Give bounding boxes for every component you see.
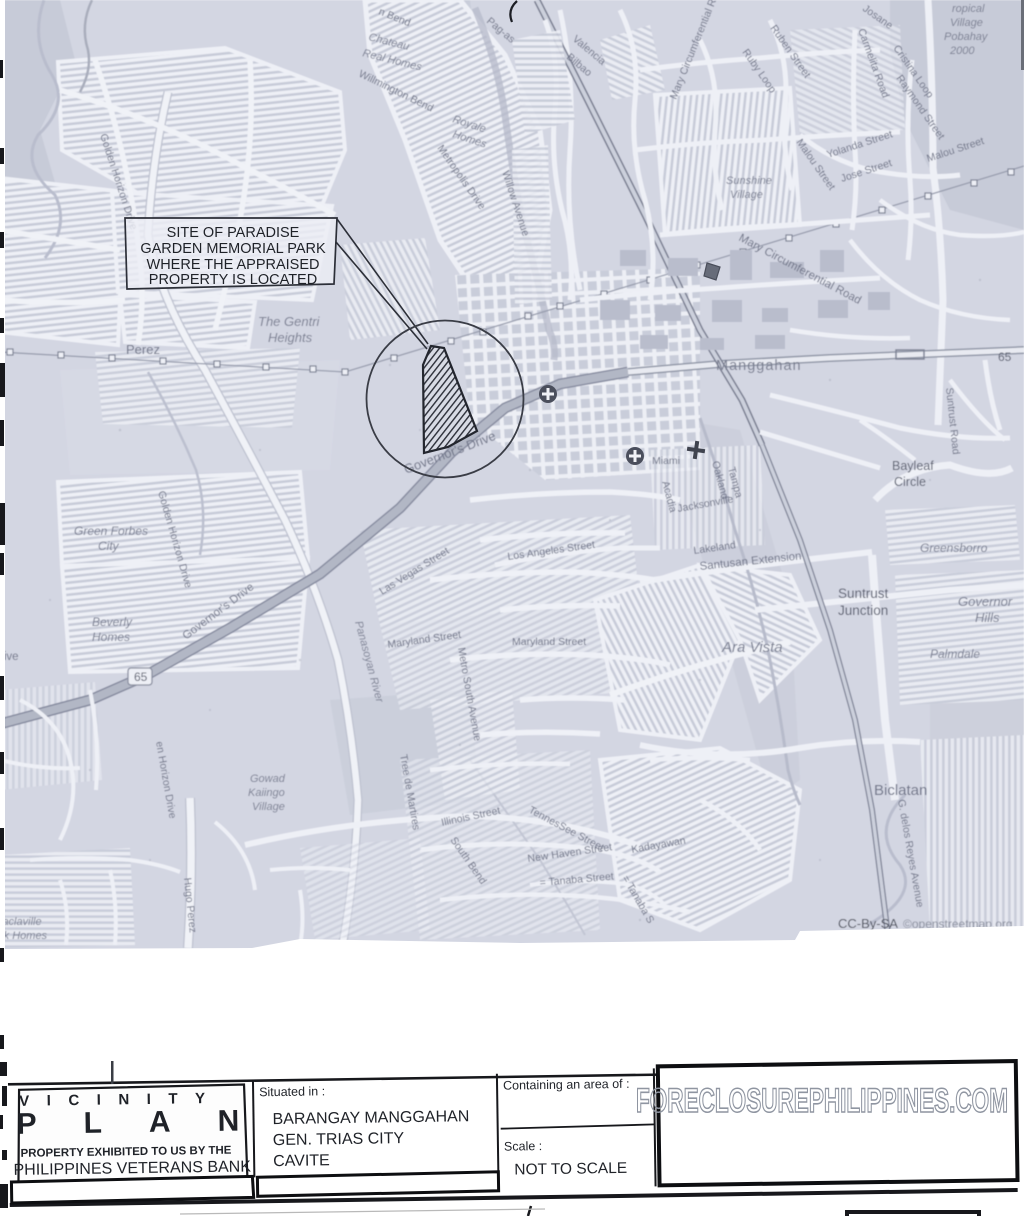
svg-text:Homes: Homes: [92, 630, 130, 644]
svg-text:Sunshine: Sunshine: [726, 175, 772, 187]
svg-text:SITE OF PARADISE: SITE OF PARADISE: [167, 225, 300, 241]
svg-text:Perez: Perez: [126, 342, 160, 357]
svg-text:65: 65: [134, 670, 148, 684]
svg-text:Gowad: Gowad: [250, 773, 286, 785]
svg-text:Containing an area of :: Containing an area of :: [503, 1077, 630, 1093]
svg-text:Ara Vista: Ara Vista: [721, 639, 783, 656]
svg-text:rk Homes: rk Homes: [0, 930, 48, 942]
svg-text:GEN. TRIAS CITY: GEN. TRIAS CITY: [273, 1130, 405, 1149]
svg-text:laclaville: laclaville: [0, 916, 42, 928]
svg-text:Village: Village: [730, 189, 763, 201]
svg-text:Situated in :: Situated in :: [259, 1084, 325, 1099]
svg-text:Governor: Governor: [958, 594, 1013, 609]
svg-text:Palmdale: Palmdale: [930, 647, 980, 661]
svg-text:PLAN: PLAN: [16, 1104, 286, 1141]
svg-text:Suntrust: Suntrust: [838, 586, 889, 601]
svg-text:Hills: Hills: [975, 610, 1000, 625]
svg-text:Maryland Street: Maryland Street: [512, 636, 586, 648]
svg-text:Beverly: Beverly: [92, 615, 133, 629]
svg-text:65: 65: [998, 350, 1012, 364]
svg-text:City: City: [98, 539, 120, 553]
svg-text:BARANGAY MANGGAHAN: BARANGAY MANGGAHAN: [272, 1108, 469, 1128]
svg-text:Manggahan: Manggahan: [716, 358, 802, 374]
svg-text:ropical: ropical: [952, 3, 985, 15]
svg-text:GARDEN MEMORIAL PARK: GARDEN MEMORIAL PARK: [140, 241, 326, 257]
svg-text:Biclatan: Biclatan: [874, 782, 927, 799]
svg-text:2000: 2000: [949, 45, 975, 57]
svg-text:CAVITE: CAVITE: [273, 1152, 330, 1170]
svg-text:FORECLOSUREPHILIPPINES.COM: FORECLOSUREPHILIPPINES.COM: [636, 1082, 1008, 1120]
svg-text:Bayleaf: Bayleaf: [892, 459, 934, 473]
svg-text:Scale :: Scale :: [504, 1139, 542, 1154]
svg-text:The Gentri: The Gentri: [258, 314, 321, 329]
svg-text:PROPERTY IS LOCATED: PROPERTY IS LOCATED: [149, 272, 317, 288]
svg-text:Circle: Circle: [894, 475, 926, 489]
svg-text:Junction: Junction: [838, 603, 888, 618]
svg-text:Kaiingo: Kaiingo: [248, 787, 285, 799]
svg-text:Village: Village: [252, 801, 285, 813]
svg-text:Village: Village: [950, 17, 983, 29]
svg-text:Heights: Heights: [268, 330, 313, 345]
svg-text:CC-By-SA: CC-By-SA: [838, 916, 898, 931]
svg-text:Miami: Miami: [652, 455, 680, 467]
svg-text:WHERE THE APPRAISED: WHERE THE APPRAISED: [147, 257, 320, 273]
svg-text:Greensborro: Greensborro: [920, 541, 988, 555]
svg-text:Green Forbes: Green Forbes: [74, 524, 148, 538]
svg-text:Pobahay: Pobahay: [944, 31, 989, 43]
svg-text:NOT TO SCALE: NOT TO SCALE: [514, 1160, 627, 1179]
